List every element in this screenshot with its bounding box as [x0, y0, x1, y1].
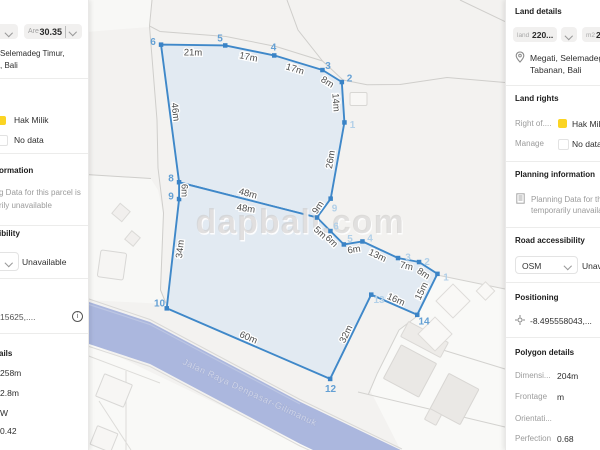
svg-text:6: 6 [333, 222, 339, 233]
svg-text:9: 9 [332, 204, 338, 215]
svg-text:6: 6 [150, 37, 156, 48]
svg-text:5: 5 [347, 234, 353, 245]
svg-text:14: 14 [418, 317, 430, 328]
svg-text:34m: 34m [174, 239, 187, 259]
svg-text:12: 12 [325, 384, 337, 395]
svg-text:3: 3 [325, 61, 331, 72]
svg-text:14m: 14m [329, 93, 341, 112]
svg-text:46m: 46m [168, 102, 181, 122]
svg-text:13: 13 [373, 295, 385, 306]
svg-text:1: 1 [350, 120, 356, 131]
svg-text:21m: 21m [184, 47, 203, 58]
svg-text:4: 4 [367, 234, 373, 245]
svg-text:2: 2 [347, 74, 353, 85]
svg-text:3: 3 [405, 253, 411, 264]
svg-text:1: 1 [443, 273, 449, 284]
svg-text:2: 2 [424, 257, 430, 268]
svg-text:10: 10 [154, 299, 166, 310]
svg-text:5: 5 [217, 34, 223, 45]
svg-text:dapbali.com: dapbali.com [195, 203, 404, 241]
svg-text:6m: 6m [179, 184, 190, 197]
svg-text:6m: 6m [347, 244, 362, 257]
svg-text:4: 4 [271, 43, 277, 54]
svg-text:9: 9 [168, 192, 174, 203]
svg-text:8: 8 [168, 174, 174, 185]
